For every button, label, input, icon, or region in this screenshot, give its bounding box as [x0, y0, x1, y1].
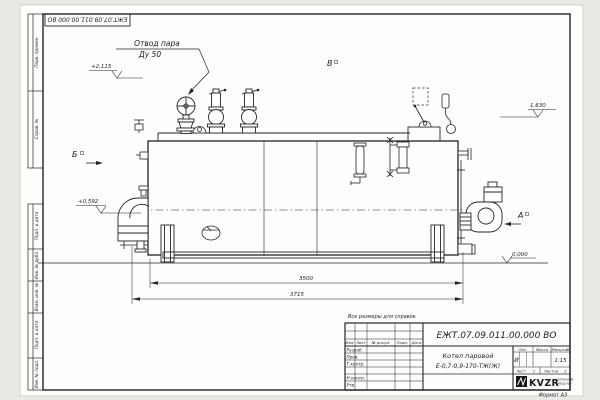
elevation-value: +0,592: [78, 199, 99, 205]
margin-label: Инв. № дубл.: [34, 251, 39, 280]
col-izm: Изм.: [346, 340, 355, 345]
row-tkontr: Т.контр.: [347, 362, 365, 367]
doc-designation: Е-0,7-0,9-170-ТЖ(Ж): [436, 363, 500, 370]
kvzr-logo-text: KVZR: [529, 378, 560, 389]
sheet-label: Лист: [515, 369, 526, 374]
scale-label: Масштаб: [551, 347, 570, 352]
drawing-sheet: { "corner_stamp": "ЕЖТ.07.09.011.00.000 …: [0, 0, 600, 400]
elevation-value: +2,115: [91, 64, 112, 70]
scale-value: 1:15: [554, 358, 567, 364]
margin-label: Подп. и дата: [34, 320, 39, 349]
margin-label: Подп. и дата: [34, 211, 39, 240]
callout-line2: Ду 50: [138, 50, 161, 59]
margin-label: Взам. инв. №: [34, 282, 39, 311]
row-utv: Утв.: [347, 383, 356, 388]
lit-value: И: [514, 357, 519, 364]
margin-label: Инв. № подл.: [34, 360, 39, 389]
elevation-value: 1,630: [530, 103, 546, 109]
view-letter: В: [327, 59, 333, 68]
reference-note: Все размеры для справок: [348, 314, 416, 320]
margin-label: Перв. примен.: [34, 36, 39, 67]
col-podp: Подп.: [397, 340, 409, 345]
doc-number: ЕЖТ.07.09.011.00.000 ВО: [436, 331, 556, 341]
view-letter: Б: [72, 150, 78, 159]
col-list: Лист: [355, 340, 366, 345]
mass-label: Масса: [536, 347, 549, 352]
sheets-label: Листов: [543, 369, 559, 374]
dimension-value: 3500: [299, 276, 313, 282]
lit-label: Лит.: [518, 347, 528, 352]
row-nkontr: Н.контр.: [347, 376, 366, 381]
row-prov: Пров.: [347, 355, 359, 360]
elevation-value: 0,000: [512, 252, 528, 258]
view-letter: А: [517, 211, 523, 220]
dimension-value: 3715: [290, 292, 304, 298]
margin-label: Справ. №: [34, 118, 39, 139]
col-doc: № докум.: [371, 340, 391, 345]
corner-stamp-number: ЕЖТ.07.09.011.00.000 ВО: [47, 16, 127, 23]
row-razrab: Разраб.: [347, 348, 363, 353]
col-data: Дата: [411, 340, 423, 345]
format-label: Формат А3: [539, 393, 567, 399]
kvzr-sub2: ЗАВОД РЭП: [556, 382, 571, 386]
sheet-value: 1: [533, 369, 535, 374]
callout-line1: Отвод пара: [134, 39, 180, 48]
doc-name: Котел паровой: [443, 352, 494, 360]
manhole: [202, 226, 220, 240]
boiler-drawing-canvas: Перв. примен. Справ. № Подп. и дата Инв.…: [0, 0, 600, 400]
